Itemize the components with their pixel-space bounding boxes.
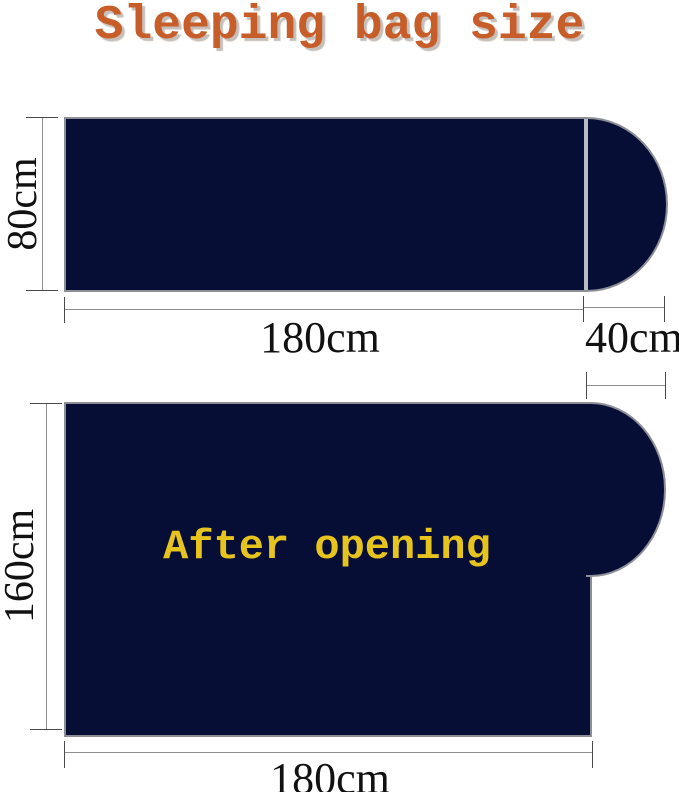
closed-bag-shape xyxy=(64,117,668,292)
open-bag-width-label: 180cm xyxy=(240,757,420,792)
hood-width-dimension-line xyxy=(584,307,664,308)
dimension-tick xyxy=(583,296,584,322)
dimension-tick xyxy=(592,741,593,768)
diagram-title: Sleeping bag size xyxy=(0,0,679,52)
dimension-tick xyxy=(586,372,587,399)
dimension-tick xyxy=(30,729,62,730)
open-bag-hood-shape xyxy=(586,402,666,577)
dimension-tick xyxy=(26,290,58,291)
closed-bag-width-dimension-line xyxy=(64,309,584,310)
dimension-tick xyxy=(30,403,62,404)
closed-bag-width-label: 180cm xyxy=(230,316,410,360)
dimension-tick xyxy=(64,741,65,768)
hood-width-label: 40cm xyxy=(585,316,677,360)
sleeping-bag-size-diagram: Sleeping bag size 80cm 180cm 40cm After … xyxy=(0,0,679,792)
open-bag-height-dimension-line xyxy=(46,403,47,730)
dimension-tick xyxy=(665,372,666,399)
open-bag-height-label: 160cm xyxy=(0,466,41,666)
dimension-tick xyxy=(64,297,65,323)
hood-divider-line xyxy=(584,119,588,290)
open-bag-hood-dimension-line xyxy=(586,385,665,386)
dimension-tick xyxy=(26,117,58,118)
open-bag-width-dimension-line xyxy=(64,752,592,753)
after-opening-label: After opening xyxy=(64,524,590,570)
closed-bag-height-label: 80cm xyxy=(2,119,44,289)
